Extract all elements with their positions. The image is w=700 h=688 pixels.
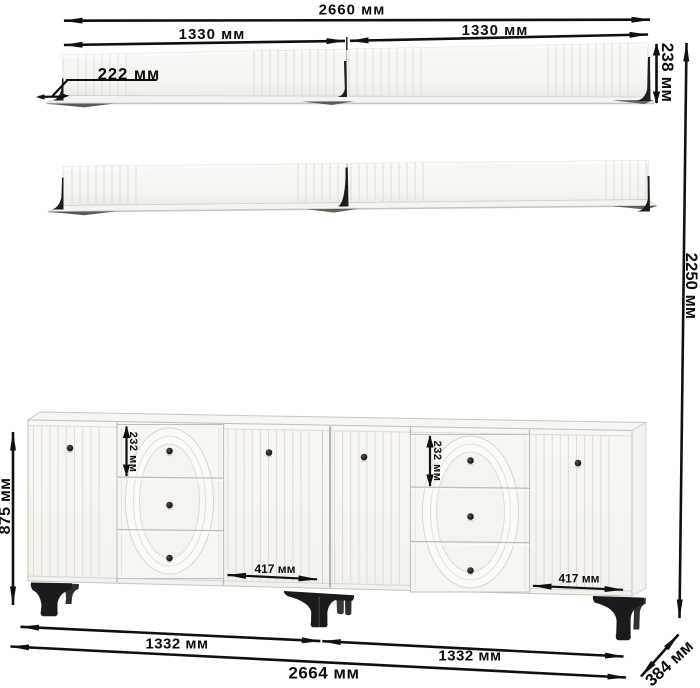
- svg-text:238 мм: 238 мм: [658, 43, 677, 102]
- svg-text:1330 мм: 1330 мм: [179, 26, 246, 43]
- svg-text:232 мм: 232 мм: [431, 441, 443, 482]
- svg-text:417 мм: 417 мм: [254, 562, 295, 576]
- svg-text:2660 мм: 2660 мм: [319, 1, 386, 18]
- svg-text:2250 мм: 2250 мм: [682, 253, 700, 319]
- svg-text:417 мм: 417 мм: [558, 572, 599, 586]
- svg-text:875 мм: 875 мм: [0, 478, 14, 535]
- svg-text:232 мм: 232 мм: [127, 432, 139, 473]
- svg-text:2664 мм: 2664 мм: [288, 663, 359, 682]
- svg-text:1332 мм: 1332 мм: [438, 647, 501, 664]
- svg-text:1332 мм: 1332 мм: [145, 635, 208, 652]
- svg-text:1330 мм: 1330 мм: [462, 22, 529, 39]
- svg-text:222 мм: 222 мм: [98, 65, 161, 83]
